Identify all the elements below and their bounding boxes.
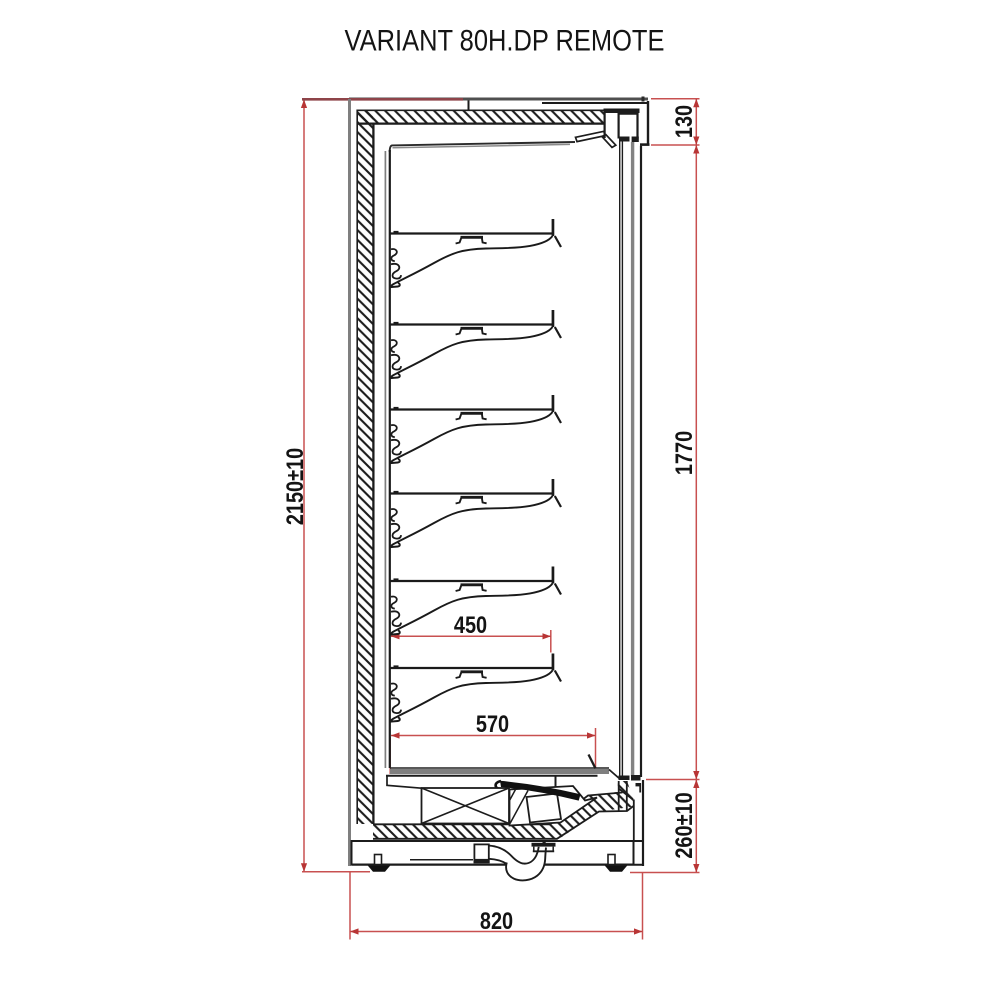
svg-text:1770: 1770 — [670, 431, 697, 475]
svg-text:130: 130 — [670, 105, 697, 138]
svg-text:820: 820 — [480, 907, 513, 934]
svg-text:VARIANT 80H.DP REMOTE: VARIANT 80H.DP REMOTE — [345, 24, 665, 57]
svg-text:450: 450 — [454, 611, 487, 638]
svg-text:2150±10: 2150±10 — [281, 448, 308, 525]
svg-text:570: 570 — [476, 710, 509, 737]
svg-text:260±10: 260±10 — [670, 792, 697, 858]
